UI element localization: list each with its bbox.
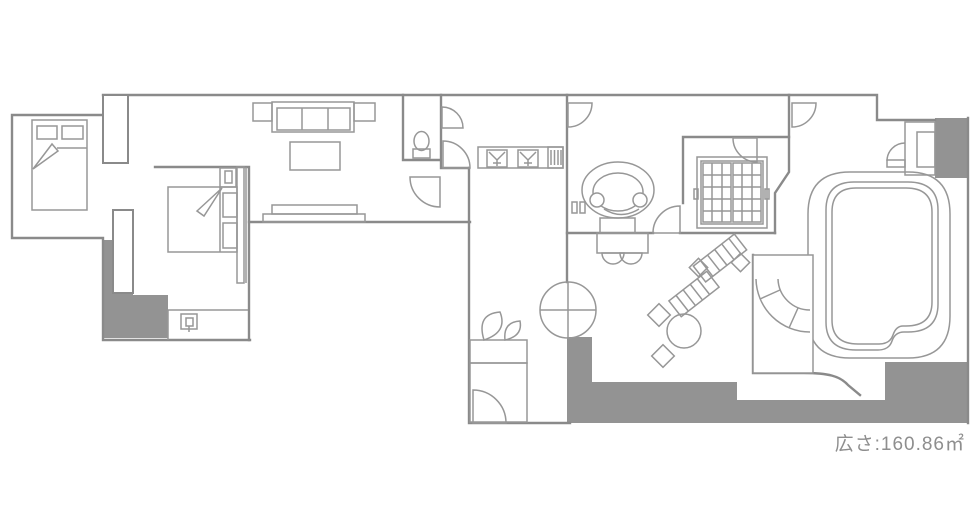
bedroom-2 <box>168 167 248 340</box>
wardrobe-frame <box>697 157 767 228</box>
lounge-area <box>648 234 750 367</box>
side-table-diamond-4 <box>731 253 749 271</box>
tub-deck <box>808 172 950 358</box>
toilet-door-swing <box>442 107 463 128</box>
entry-plant <box>482 312 520 340</box>
sink-left-faucet <box>489 152 505 166</box>
bathroom-west-wall <box>775 95 789 233</box>
lounge-chair-2-slats <box>676 279 710 311</box>
toilet-room <box>413 132 430 159</box>
dressing-area <box>582 162 654 264</box>
oval-chair-arm-right <box>633 193 647 207</box>
round-table <box>667 314 701 348</box>
entry-door-swing <box>473 390 506 423</box>
sofa-body <box>272 102 354 132</box>
coffee-table <box>290 142 340 170</box>
pillar-top <box>103 95 128 163</box>
sofa-cushions <box>277 108 350 130</box>
wardrobe-panel-left-grid <box>703 163 731 222</box>
wardrobe-panel-right-grid <box>733 163 761 222</box>
bathtub-rim-inner <box>832 188 932 344</box>
bathroom <box>753 122 950 373</box>
vanity-area <box>478 147 563 168</box>
bath-niche-inner <box>917 132 935 167</box>
bed2-headboard <box>237 167 244 283</box>
tv-board-top <box>272 205 357 214</box>
bedroom2-console <box>168 310 248 340</box>
switch-right <box>580 202 585 213</box>
shaft-top-right-fill <box>935 118 968 178</box>
sofa-cushion-dividers <box>302 108 328 130</box>
hall-west-wall <box>469 168 570 423</box>
bed1-pillow-right <box>62 126 83 139</box>
wardrobe-frame-inner <box>701 161 763 224</box>
living-room <box>253 102 375 222</box>
bathroom-door-swing <box>792 103 816 127</box>
towel-rack-hatch <box>551 150 561 165</box>
bed2-nightstand-lamp <box>225 171 232 183</box>
sofa-armrest-right <box>354 103 375 121</box>
floor-plan-page: 広さ:160.86㎡ <box>0 0 980 510</box>
shoe-cabinet <box>470 340 527 363</box>
lounge-chair-2-frame <box>669 271 719 316</box>
bed1-blanket-fold <box>33 144 58 169</box>
entry-closet <box>470 363 527 422</box>
bed2-pillow-bottom <box>223 223 237 248</box>
pillar-mid <box>113 210 133 293</box>
wall-control-detail <box>186 318 193 332</box>
niche-door-arc <box>887 143 905 161</box>
main-north-wall <box>103 95 935 120</box>
bath-platform <box>753 255 813 373</box>
wardrobe-handle-left <box>694 189 698 199</box>
double-bed-2 <box>168 187 237 252</box>
dressing-north-door-swing <box>568 103 592 127</box>
dressing-stool <box>600 218 635 233</box>
bed2-pillow-top <box>223 193 237 217</box>
lounge-chair-2 <box>669 271 719 316</box>
wardrobe-panel-left <box>703 163 731 222</box>
area-label: 広さ:160.86㎡ <box>600 429 965 456</box>
wardrobe-room <box>694 157 769 228</box>
toilet-bowl <box>414 132 429 151</box>
sofa-armrest-left <box>253 103 272 121</box>
sink-right-faucet <box>520 152 536 166</box>
oval-chair-arm-left <box>590 193 604 207</box>
bed1-pillow-left <box>37 126 57 139</box>
bed2-blanket-fold <box>197 188 222 216</box>
bathtub-rim-outer <box>826 182 938 350</box>
bedroom-1 <box>32 120 87 210</box>
niche-door-leaf <box>887 160 905 167</box>
wardrobe-panel-right <box>733 163 761 222</box>
switch-left <box>572 202 577 213</box>
double-bed <box>32 120 87 210</box>
walls <box>12 95 968 423</box>
side-table-diamond-3 <box>652 345 675 368</box>
wardrobe-west-door-swing <box>653 206 680 233</box>
living-door-swing <box>410 177 440 207</box>
wardrobe-walls <box>683 137 789 203</box>
side-table-diamond-2 <box>648 304 671 327</box>
vanity-door-swing <box>443 141 470 168</box>
dressing-desk <box>597 233 648 253</box>
wardrobe-north-door-swing <box>733 138 757 162</box>
double-swing-door <box>540 282 596 338</box>
